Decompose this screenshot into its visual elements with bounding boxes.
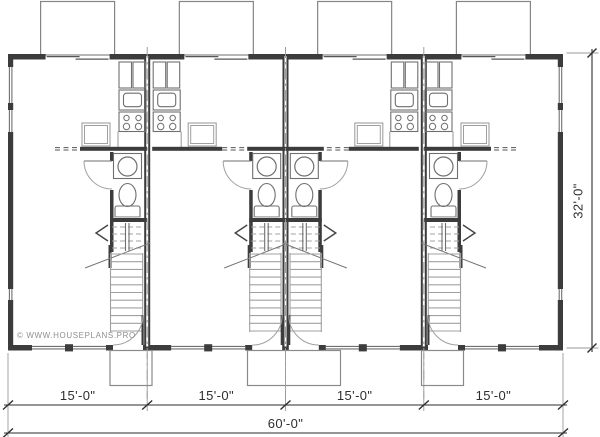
unit-3 (283, 62, 419, 345)
stoop-3 (422, 351, 464, 386)
deck-unit-1 (41, 2, 115, 56)
stair-direction-arrow (324, 225, 336, 241)
front-door-arc (428, 315, 458, 345)
kitchen (425, 62, 489, 147)
dimension-label-depth: 32'-0" (571, 183, 586, 219)
front-door (113, 315, 144, 345)
front-door-arc (252, 315, 282, 345)
bath-door-arc (320, 161, 348, 189)
front-door (252, 315, 283, 345)
floor-plan-drawing (0, 0, 600, 437)
stairs (283, 223, 347, 332)
stair-direction-arrow (463, 225, 475, 241)
kitchen (82, 62, 146, 147)
mid-wall (55, 147, 147, 151)
stairs (224, 223, 288, 332)
deck-unit-3 (318, 2, 392, 56)
bathroom (424, 152, 487, 252)
dimension-label-total-width: 60'-0" (268, 416, 304, 431)
mid-wall (152, 147, 285, 151)
dimension-label-unit-1-width: 15'-0" (60, 388, 96, 403)
bathroom (286, 152, 348, 252)
bathroom (84, 152, 147, 252)
dimension-label-unit-3-width: 15'-0" (337, 388, 373, 403)
front-door (427, 315, 458, 345)
deck-unit-2 (179, 2, 253, 56)
stair-direction-arrow (96, 225, 108, 241)
stairs (85, 223, 150, 332)
kitchen (355, 62, 418, 147)
mid-wall (286, 147, 419, 151)
front-door-arc (113, 315, 143, 345)
deck-unit-4 (456, 2, 530, 56)
bathroom (223, 152, 285, 252)
bath-door-arc (223, 161, 251, 189)
watermark: © WWW.HOUSEPLANS.PRO (17, 331, 136, 340)
unit-2 (152, 62, 288, 345)
unit-4 (421, 62, 516, 345)
unit-1 (55, 62, 150, 345)
stoops (110, 351, 464, 386)
stoop-1 (110, 351, 152, 386)
kitchen (153, 62, 216, 147)
front-door (288, 315, 319, 345)
mid-wall (424, 147, 516, 151)
floor-plan-page: 15'-0" 15'-0" 15'-0" 15'-0" 60'-0" 32'-0… (0, 0, 600, 437)
stoop-2 (248, 351, 341, 386)
stair-direction-arrow (235, 225, 247, 241)
bath-door-arc (459, 161, 487, 189)
dimension-lines (3, 49, 599, 437)
stairs (421, 223, 486, 332)
dimension-label-unit-4-width: 15'-0" (476, 388, 512, 403)
front-door-arc (289, 315, 319, 345)
bath-door-arc (84, 161, 112, 189)
dimension-label-unit-2-width: 15'-0" (199, 388, 235, 403)
